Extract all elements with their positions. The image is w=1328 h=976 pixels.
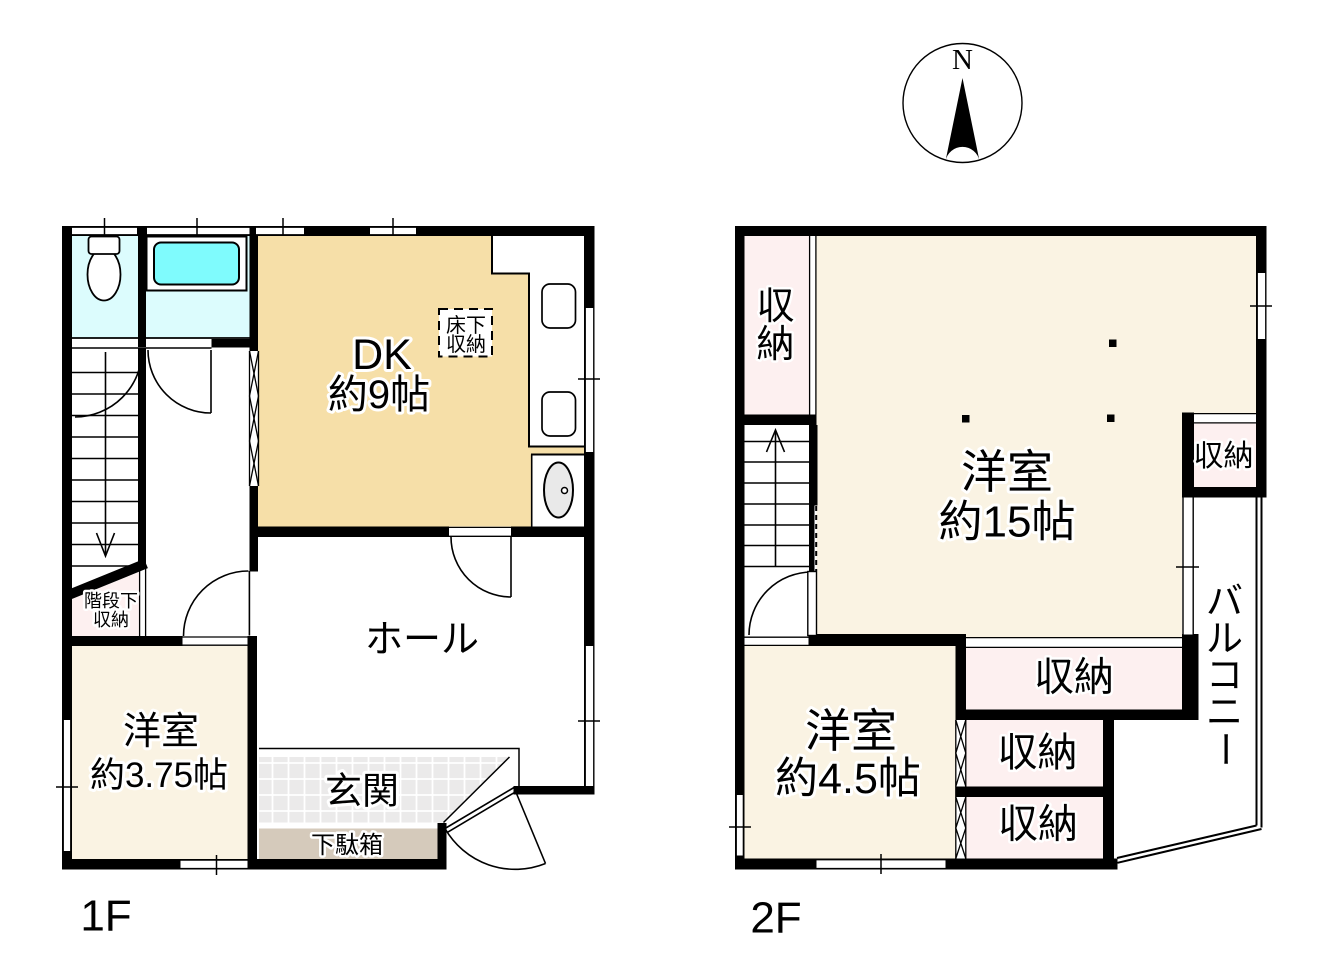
- svg-text:収納: 収納: [1034, 656, 1114, 700]
- svg-text:洋室: 洋室: [961, 446, 1053, 498]
- svg-text:約9帖: 約9帖: [328, 373, 430, 417]
- svg-text:下駄箱: 下駄箱: [311, 832, 383, 859]
- svg-text:コ: コ: [1206, 655, 1243, 696]
- svg-text:洋室: 洋室: [805, 705, 897, 757]
- svg-text:約15帖: 約15帖: [939, 498, 1076, 547]
- svg-text:DK: DK: [352, 331, 412, 379]
- svg-text:2F: 2F: [750, 894, 801, 943]
- svg-text:ホール: ホール: [365, 619, 479, 661]
- svg-text:約3.75帖: 約3.75帖: [90, 756, 228, 795]
- svg-text:洋室: 洋室: [123, 711, 199, 753]
- svg-text:収納: 収納: [446, 333, 486, 356]
- svg-text:収納: 収納: [998, 803, 1078, 847]
- svg-text:ニ: ニ: [1206, 692, 1243, 733]
- svg-text:収納: 収納: [1194, 440, 1254, 473]
- svg-text:収: 収: [756, 286, 794, 328]
- svg-text:約4.5帖: 約4.5帖: [775, 755, 921, 803]
- svg-text:N: N: [952, 44, 973, 76]
- svg-text:階段下: 階段下: [84, 591, 138, 611]
- svg-text:1F: 1F: [80, 892, 131, 941]
- svg-text:ル: ル: [1206, 618, 1243, 659]
- svg-text:ー: ー: [1204, 731, 1245, 768]
- svg-text:収納: 収納: [998, 731, 1078, 775]
- svg-text:収納: 収納: [93, 610, 129, 630]
- svg-text:バ: バ: [1206, 581, 1243, 622]
- svg-text:納: 納: [756, 324, 794, 366]
- svg-text:玄関: 玄関: [325, 771, 399, 812]
